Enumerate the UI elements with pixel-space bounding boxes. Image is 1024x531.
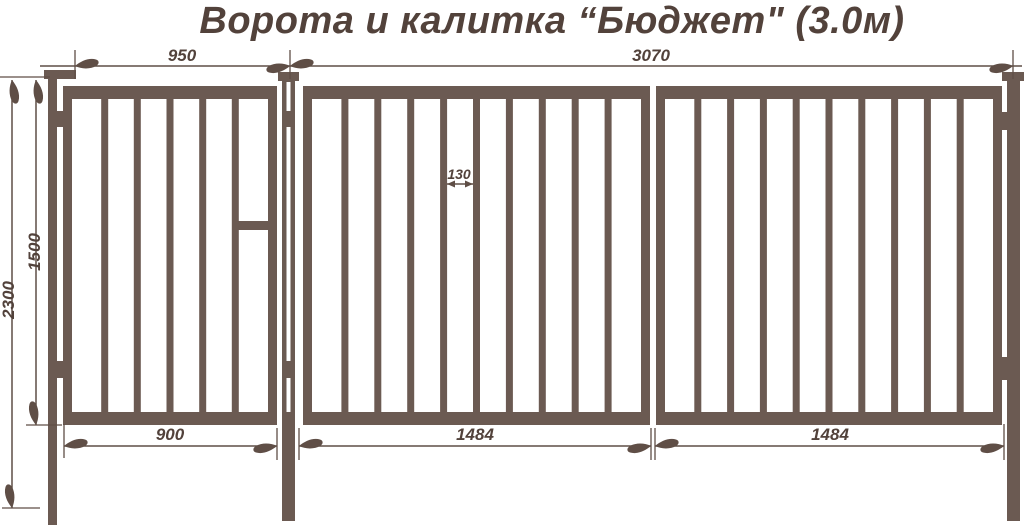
gate-leaf1-bar bbox=[374, 99, 381, 412]
gate-leaf2-bar bbox=[858, 99, 865, 412]
dimension-label: 2300 bbox=[0, 281, 18, 320]
gate-leaf1-bottom-rail bbox=[303, 412, 650, 425]
dimension-label: 1484 bbox=[811, 425, 849, 444]
gate-leaf1-bar bbox=[440, 99, 447, 412]
dimension-label: 1500 bbox=[25, 233, 44, 271]
gate-leaf1-bar bbox=[605, 99, 612, 412]
wicket-top-rail bbox=[63, 86, 277, 99]
gate-leaf1-bar bbox=[473, 99, 480, 412]
wicket-bar bbox=[232, 99, 239, 412]
gate-leaf1-bar bbox=[407, 99, 414, 412]
drawing-canvas: Ворота и калитка “Бюджет" (3.0м) 9503070… bbox=[0, 0, 1024, 531]
gate-leaf1-bar bbox=[341, 99, 348, 412]
dimension-arrow-icon bbox=[29, 401, 39, 425]
dimension-label: 900 bbox=[156, 425, 185, 444]
dimension-arrow-icon bbox=[989, 64, 1013, 74]
gate-leaf2-bottom-rail bbox=[656, 412, 1002, 425]
gate-leaf2-bar bbox=[793, 99, 800, 412]
gate-leaf1-top-rail bbox=[303, 86, 650, 99]
middle-post-slit-top bbox=[287, 82, 291, 111]
wicket-bar bbox=[101, 99, 108, 412]
dimension-arrow-icon bbox=[980, 444, 1004, 454]
gate-leaf1-bar bbox=[506, 99, 513, 412]
dimension-arrow-icon bbox=[266, 64, 290, 74]
middle-post-cap bbox=[278, 72, 299, 81]
gate-leaf2-bar bbox=[924, 99, 931, 412]
gate-leaf1-left-stile bbox=[303, 86, 312, 425]
gate-hinge-bottom bbox=[993, 357, 1020, 380]
gate-leaf1-bar bbox=[572, 99, 579, 412]
gate-leaf1-bar bbox=[539, 99, 546, 412]
gate-hinge-top bbox=[993, 112, 1020, 130]
dimension-arrow-icon bbox=[64, 439, 88, 449]
gate-leaf2-bar bbox=[727, 99, 734, 412]
dimension-arrow-icon bbox=[299, 439, 323, 449]
dimension-label: 130 bbox=[447, 166, 471, 182]
gate-leaf2-bar bbox=[891, 99, 898, 412]
right-post bbox=[1007, 80, 1020, 521]
gate-leaf2-bar bbox=[826, 99, 833, 412]
gate-leaf1-right-stile bbox=[641, 86, 650, 425]
wicket-hinge-bottom bbox=[48, 361, 72, 378]
gate-leaf2-bar bbox=[957, 99, 964, 412]
gate-leaf2-bar bbox=[694, 99, 701, 412]
dimension-arrow-icon bbox=[655, 439, 679, 449]
wicket-bar bbox=[167, 99, 174, 412]
wicket-bottom-rail bbox=[63, 412, 277, 425]
dimension-arrow-icon bbox=[253, 444, 277, 454]
wicket-right-stile bbox=[268, 86, 277, 425]
dimension-label: 1484 bbox=[456, 425, 494, 444]
dimension-label: 3070 bbox=[632, 46, 670, 65]
dimension-arrow-icon bbox=[5, 484, 15, 508]
dimension-arrow-icon bbox=[627, 444, 651, 454]
middle-post-slit-middle bbox=[287, 127, 291, 361]
dimension-arrow-icon bbox=[290, 59, 314, 69]
dimension-arrow-icon bbox=[75, 59, 99, 69]
wicket-bar bbox=[134, 99, 141, 412]
wicket-lock-crossbar bbox=[238, 221, 268, 230]
middle-post-slit-bottom bbox=[287, 378, 291, 412]
gate-drawing: 95030702300150013090014841484 bbox=[0, 0, 1024, 531]
dimension-label: 950 bbox=[168, 46, 197, 65]
left-post bbox=[48, 78, 57, 525]
wicket-bar bbox=[199, 99, 206, 412]
gate-leaf2-top-rail bbox=[656, 86, 1002, 99]
gate-leaf2-left-stile bbox=[656, 86, 665, 425]
gate-leaf2-bar bbox=[760, 99, 767, 412]
dimension-arrow-icon bbox=[34, 80, 44, 104]
dimension-arrow-icon bbox=[10, 80, 20, 104]
wicket-hinge-top bbox=[48, 111, 72, 127]
